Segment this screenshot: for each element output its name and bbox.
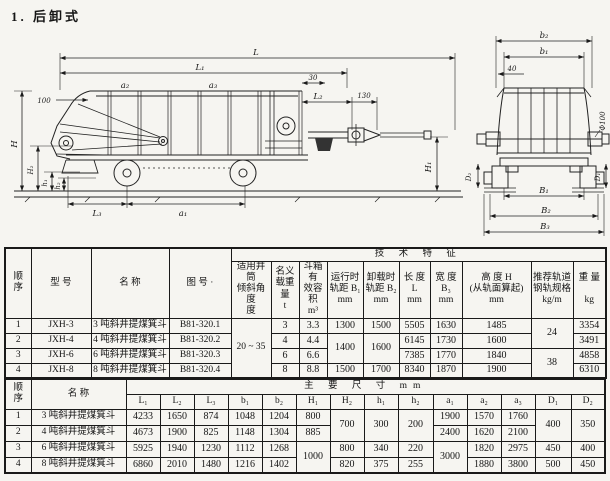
side-dimensions: [14, 53, 455, 208]
cell: 5505: [399, 318, 430, 333]
cell: B81-320.1: [169, 318, 231, 333]
dim-label-30: 30: [309, 74, 318, 82]
dim-label-D2: D₂: [465, 173, 473, 183]
header-drawing-no: 图 号 ·: [169, 248, 231, 318]
cell: JXH-3: [31, 318, 91, 333]
dim-label-L3: L₃: [91, 209, 102, 219]
cell: 1570: [467, 409, 501, 425]
cell: 1500: [327, 363, 363, 378]
cell: 6 吨斜井提煤箕斗: [31, 441, 126, 457]
header-D2: D₂: [571, 394, 605, 409]
cell: 700: [330, 409, 364, 441]
cell: 1900: [160, 425, 194, 441]
cell: 3000: [433, 441, 467, 473]
cell: B81-320.4: [169, 363, 231, 378]
header-L1: L₁: [126, 394, 160, 409]
cell: B81-320.3: [169, 348, 231, 363]
dim-label-a1: a₁: [179, 209, 187, 219]
cell: 1630: [430, 318, 462, 333]
cell: 4 吨斜井提煤箕斗: [91, 333, 169, 348]
cell: 874: [194, 409, 228, 425]
cell: 1840: [462, 348, 531, 363]
header-name: 名 称: [91, 248, 169, 318]
header-load: 名义 载重量 t: [271, 261, 299, 318]
cell: 38: [531, 348, 573, 378]
table-row: 1 JXH-3 3 吨斜井提煤箕斗 B81-320.1 20 ~ 35 3 3.…: [5, 318, 606, 333]
header-b1: b₁: [228, 394, 262, 409]
cell: 1480: [194, 457, 228, 473]
dim-label-130: 130: [357, 92, 371, 100]
header-H1: H₁: [296, 394, 330, 409]
table-row: 3 JXH-6 6 吨斜井提煤箕斗 B81-320.3 6 6.6 7385 1…: [5, 348, 606, 363]
cell: 20 ~ 35: [231, 318, 271, 378]
header-a2: a₂: [467, 394, 501, 409]
dim-label-h1: h₁: [41, 179, 49, 187]
cell: 350: [571, 409, 605, 441]
cell: 820: [330, 457, 364, 473]
cell: 340: [364, 441, 398, 457]
cell: 1600: [462, 333, 531, 348]
cell: JXH-6: [31, 348, 91, 363]
cell: 3: [5, 348, 31, 363]
cell: 3354: [573, 318, 606, 333]
cell: 8.8: [299, 363, 327, 378]
cell: 300: [364, 409, 398, 441]
table-row: 2 JXH-4 4 吨斜井提煤箕斗 B81-320.2 4 4.4 1400 1…: [5, 333, 606, 348]
dim-label-a3: a₃: [209, 81, 218, 91]
cell: 1000: [296, 441, 330, 473]
cell: 3 吨斜井提煤箕斗: [31, 409, 126, 425]
header-L2: L₂: [160, 394, 194, 409]
dim-label-B3: B₃: [539, 222, 550, 232]
dim-label-H: H: [10, 140, 20, 149]
header-gauge-unload: 卸载时 轨距 B₂ mm: [363, 261, 399, 318]
header-h1: h₁: [364, 394, 398, 409]
cell: 6310: [573, 363, 606, 378]
tech-spec-table: 顺 序 型 号 名 称 图 号 · 技 术 特 征 适用井筒 倾斜角度 度 名义…: [4, 247, 607, 379]
cell: 1: [5, 409, 31, 425]
dim-label-H2: H₂: [27, 165, 35, 175]
cell: 2100: [501, 425, 535, 441]
cell: 8: [271, 363, 299, 378]
header-h2: h₂: [398, 394, 433, 409]
cell: 4.4: [299, 333, 327, 348]
cell: B81-320.2: [169, 333, 231, 348]
header-a1: a₁: [433, 394, 467, 409]
cell: 450: [571, 457, 605, 473]
header-volume: 斗箱有 效容积 m³: [299, 261, 327, 318]
header-H2: H₂: [330, 394, 364, 409]
cell: 1760: [501, 409, 535, 425]
header-rail-spec: 推荐轨道 钢轨规格 kg/m: [531, 261, 573, 318]
cell: 3800: [501, 457, 535, 473]
header-D1: D₁: [535, 394, 571, 409]
page-title: 1. 后卸式: [11, 6, 81, 25]
side-view: [14, 91, 463, 202]
cell: 3: [271, 318, 299, 333]
cell: 1770: [430, 348, 462, 363]
header-main-dims: 主 要 尺 寸 mm: [126, 379, 605, 394]
cell: 1204: [262, 409, 296, 425]
cell: 1148: [228, 425, 262, 441]
header-a3: a₃: [501, 394, 535, 409]
cell: 6 吨斜井提煤箕斗: [91, 348, 169, 363]
dim-label-100: 100: [37, 97, 51, 105]
cell: 1230: [194, 441, 228, 457]
cell: 1048: [228, 409, 262, 425]
dim-label-L: L: [252, 48, 259, 58]
cell: 1500: [363, 318, 399, 333]
cell: 6860: [126, 457, 160, 473]
cell: JXH-8: [31, 363, 91, 378]
cell: 1700: [363, 363, 399, 378]
cell: 400: [571, 441, 605, 457]
cell: 375: [364, 457, 398, 473]
cell: 1600: [363, 333, 399, 363]
table-row: 4 JXH-8 8 吨斜井提煤箕斗 B81-320.4 8 8.8 1500 1…: [5, 363, 606, 378]
cell: 1940: [160, 441, 194, 457]
header-name: 名 称: [31, 379, 126, 409]
dim-label-a2: a₂: [121, 81, 130, 91]
header-weight: 重 量 kg: [573, 261, 606, 318]
cell: 6145: [399, 333, 430, 348]
cell: 885: [296, 425, 330, 441]
cell: 3.3: [299, 318, 327, 333]
cell: 500: [535, 457, 571, 473]
cell: 8 吨斜井提煤箕斗: [91, 363, 169, 378]
table-header-row: 顺 序 名 称 主 要 尺 寸 mm: [5, 379, 605, 394]
cell: 2: [5, 333, 31, 348]
dimension-table: 顺 序 名 称 主 要 尺 寸 mm L₁ L₂ L₃ b₁ b₂ H₁ H₂ …: [4, 378, 606, 474]
cell: 1485: [462, 318, 531, 333]
cell: 800: [330, 441, 364, 457]
cell: 1216: [228, 457, 262, 473]
dim-label-b1: b₁: [540, 47, 549, 57]
cell: 1400: [327, 333, 363, 363]
cell: 1870: [430, 363, 462, 378]
header-model: 型 号: [31, 248, 91, 318]
cell: 4: [271, 333, 299, 348]
dim-label-D1: D₁: [594, 173, 602, 183]
table-row: 3 6 吨斜井提煤箕斗 5925 1940 1230 1112 1268 100…: [5, 441, 605, 457]
cell: 6: [271, 348, 299, 363]
cell: 1: [5, 318, 31, 333]
cell: JXH-4: [31, 333, 91, 348]
cell: 1112: [228, 441, 262, 457]
cell: 4 吨斜井提煤箕斗: [31, 425, 126, 441]
cell: 2: [5, 425, 31, 441]
header-width: 宽 度 B₃ mm: [430, 261, 462, 318]
dim-label-H1: H₁: [424, 162, 434, 174]
cell: 7385: [399, 348, 430, 363]
cell: 1880: [467, 457, 501, 473]
cell: 24: [531, 318, 573, 348]
header-b2: b₂: [262, 394, 296, 409]
cell: 4: [5, 363, 31, 378]
cell: 8340: [399, 363, 430, 378]
header-L3: L₃: [194, 394, 228, 409]
table-header-row: 顺 序 型 号 名 称 图 号 · 技 术 特 征: [5, 248, 606, 261]
dim-label-b2: b₂: [540, 31, 549, 41]
cell: 3491: [573, 333, 606, 348]
header-length: 长 度 L mm: [399, 261, 430, 318]
cell: 220: [398, 441, 433, 457]
cell: 825: [194, 425, 228, 441]
cell: 255: [398, 457, 433, 473]
dim-label-B1: B₁: [538, 186, 549, 196]
cell: 3: [5, 441, 31, 457]
cell: 2975: [501, 441, 535, 457]
header-seq: 顺 序: [5, 379, 31, 409]
cell: 1820: [467, 441, 501, 457]
cell: 4673: [126, 425, 160, 441]
cell: 4233: [126, 409, 160, 425]
cell: 800: [296, 409, 330, 425]
cell: 400: [535, 409, 571, 441]
dim-label-B2: B₂: [540, 206, 551, 216]
cell: 1300: [327, 318, 363, 333]
cell: 4858: [573, 348, 606, 363]
header-tech-group: 技 术 特 征: [231, 248, 606, 261]
cell: 1650: [160, 409, 194, 425]
table-row: 1 3 吨斜井提煤箕斗 4233 1650 874 1048 1204 800 …: [5, 409, 605, 425]
cell: 5925: [126, 441, 160, 457]
dim-label-L2: L₂: [312, 92, 323, 102]
cell: 1900: [462, 363, 531, 378]
cell: 450: [535, 441, 571, 457]
dim-label-L1: L₁: [194, 63, 204, 73]
dim-label-40: 40: [507, 65, 517, 73]
cell: 1620: [467, 425, 501, 441]
table-row: 2 4 吨斜井提煤箕斗 4673 1900 825 1148 1304 885 …: [5, 425, 605, 441]
cell: 1402: [262, 457, 296, 473]
cell: 4: [5, 457, 31, 473]
cell: 1304: [262, 425, 296, 441]
cell: 2010: [160, 457, 194, 473]
cell: 8 吨斜井提煤箕斗: [31, 457, 126, 473]
header-gauge-run: 运行时 轨距 B₁ mm: [327, 261, 363, 318]
header-incline: 适用井筒 倾斜角度 度: [231, 261, 271, 318]
end-view: [477, 88, 609, 192]
dim-label-phi100: Φ100: [599, 111, 607, 131]
cell: 1900: [433, 409, 467, 425]
cell: 1268: [262, 441, 296, 457]
cell: 200: [398, 409, 433, 441]
technical-drawing: L L₁ 30 100 a₂ a₃ L₂ 130 H H₂ h₁ h₂ L₃ a…: [0, 26, 610, 246]
dim-label-h2: h₂: [54, 182, 62, 190]
cell: 3 吨斜井提煤箕斗: [91, 318, 169, 333]
cell: 2400: [433, 425, 467, 441]
cell: 1730: [430, 333, 462, 348]
header-seq: 顺 序: [5, 248, 31, 318]
cell: 6.6: [299, 348, 327, 363]
header-height: 高 度 H (从轨面算起) mm: [462, 261, 531, 318]
